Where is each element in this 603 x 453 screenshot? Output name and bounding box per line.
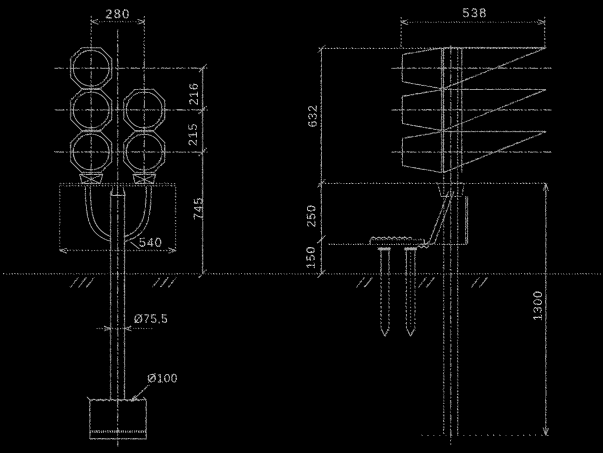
svg-text:Ø75,5: Ø75,5 (134, 314, 168, 326)
svg-text:1300: 1300 (531, 290, 545, 321)
svg-text:540: 540 (139, 236, 163, 250)
svg-text:216: 216 (187, 82, 201, 105)
svg-text:250: 250 (304, 204, 318, 227)
svg-text:538: 538 (462, 6, 487, 20)
svg-text:Ø100: Ø100 (147, 373, 178, 385)
svg-text:745: 745 (191, 196, 205, 219)
svg-text:215: 215 (186, 122, 200, 145)
svg-text:150: 150 (304, 245, 318, 268)
svg-text:280: 280 (105, 7, 130, 21)
svg-text:632: 632 (306, 104, 320, 127)
